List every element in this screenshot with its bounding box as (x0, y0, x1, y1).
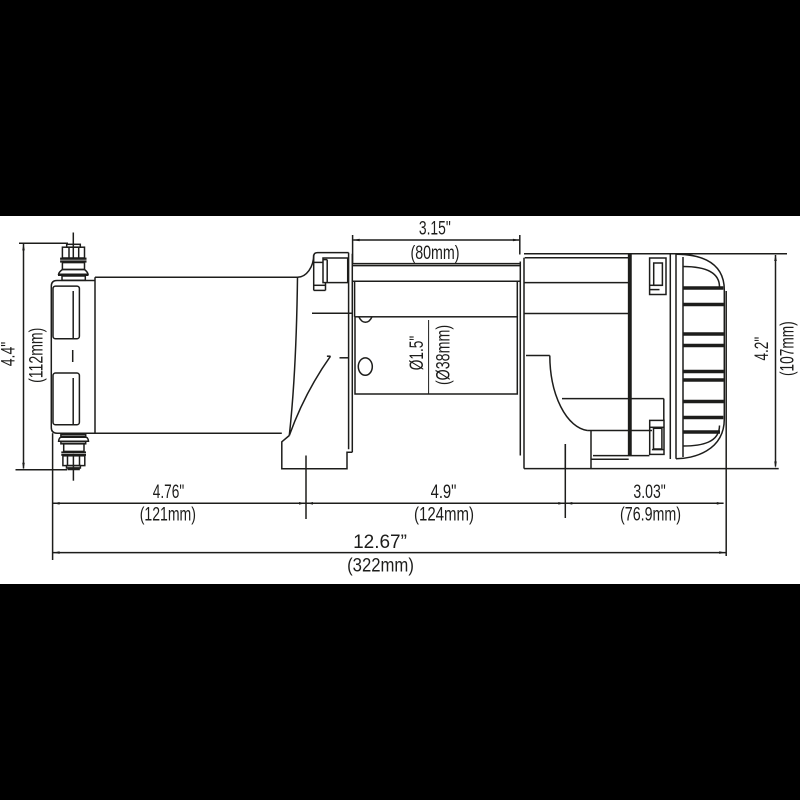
svg-text:(80mm): (80mm) (410, 242, 459, 263)
svg-text:(112mm): (112mm) (25, 328, 47, 383)
svg-text:(76.9mm): (76.9mm) (620, 504, 681, 525)
svg-text:4.4": 4.4" (0, 342, 19, 367)
svg-text:(Ø38mm): (Ø38mm) (433, 325, 454, 385)
svg-text:Ø1.5": Ø1.5" (406, 336, 428, 371)
svg-text:3.03": 3.03" (633, 481, 665, 503)
svg-text:3.15": 3.15" (419, 217, 451, 239)
svg-text:12.67”: 12.67” (353, 532, 407, 553)
svg-text:4.76": 4.76" (153, 481, 185, 503)
svg-text:4.2": 4.2" (751, 337, 773, 361)
svg-text:(322mm): (322mm) (347, 555, 414, 576)
svg-text:(124mm): (124mm) (414, 504, 474, 525)
svg-text:4.9": 4.9" (431, 481, 457, 502)
svg-text:(121mm): (121mm) (140, 503, 196, 525)
svg-text:(107mm): (107mm) (776, 321, 798, 376)
